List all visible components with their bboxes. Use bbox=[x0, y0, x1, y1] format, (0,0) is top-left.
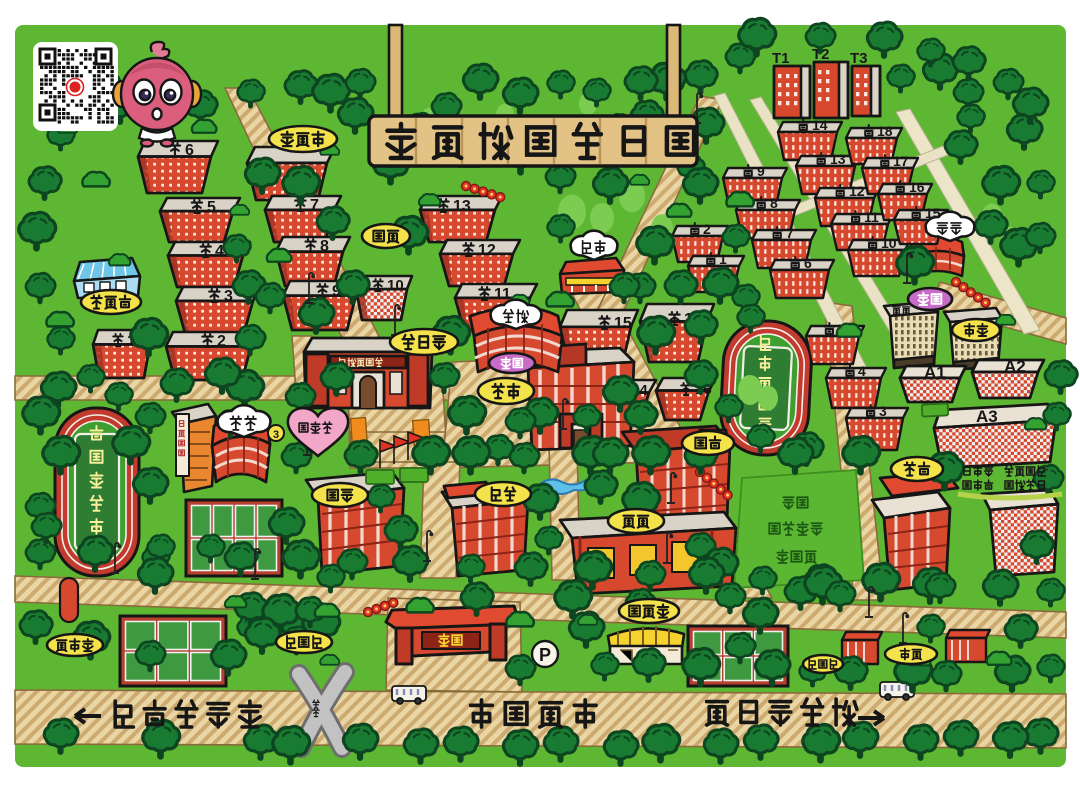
svg-text:A2: A2 bbox=[1004, 357, 1026, 376]
svg-text:14: 14 bbox=[812, 117, 828, 133]
svg-text:4: 4 bbox=[858, 363, 866, 379]
svg-text:7: 7 bbox=[786, 225, 794, 241]
svg-text:1: 1 bbox=[719, 251, 727, 267]
svg-text:12: 12 bbox=[478, 242, 496, 259]
svg-text:8: 8 bbox=[320, 238, 329, 255]
svg-text:10: 10 bbox=[387, 277, 404, 294]
svg-text:16: 16 bbox=[909, 179, 925, 195]
svg-text:13: 13 bbox=[453, 198, 471, 215]
svg-text:15: 15 bbox=[614, 315, 632, 332]
svg-text:A3: A3 bbox=[976, 407, 998, 426]
svg-text:6: 6 bbox=[185, 142, 194, 159]
svg-text:A1: A1 bbox=[924, 363, 946, 382]
svg-text:8: 8 bbox=[770, 195, 778, 211]
svg-text:10: 10 bbox=[881, 235, 897, 251]
svg-text:P: P bbox=[539, 645, 551, 665]
svg-text:3: 3 bbox=[273, 429, 279, 441]
svg-text:2: 2 bbox=[703, 221, 711, 237]
svg-text:3: 3 bbox=[879, 403, 887, 419]
svg-text:2: 2 bbox=[217, 333, 226, 350]
svg-text:12: 12 bbox=[849, 183, 865, 199]
svg-text:7: 7 bbox=[310, 197, 319, 214]
svg-text:17: 17 bbox=[893, 153, 909, 169]
svg-text:11: 11 bbox=[864, 209, 879, 225]
svg-text:9: 9 bbox=[757, 163, 765, 179]
svg-text:5: 5 bbox=[207, 199, 216, 216]
svg-text:18: 18 bbox=[877, 123, 893, 139]
svg-text:3: 3 bbox=[224, 288, 233, 305]
svg-text:T1: T1 bbox=[772, 50, 790, 67]
svg-text:T3: T3 bbox=[850, 50, 868, 67]
svg-text:13: 13 bbox=[830, 151, 846, 167]
svg-text:6: 6 bbox=[804, 255, 812, 271]
